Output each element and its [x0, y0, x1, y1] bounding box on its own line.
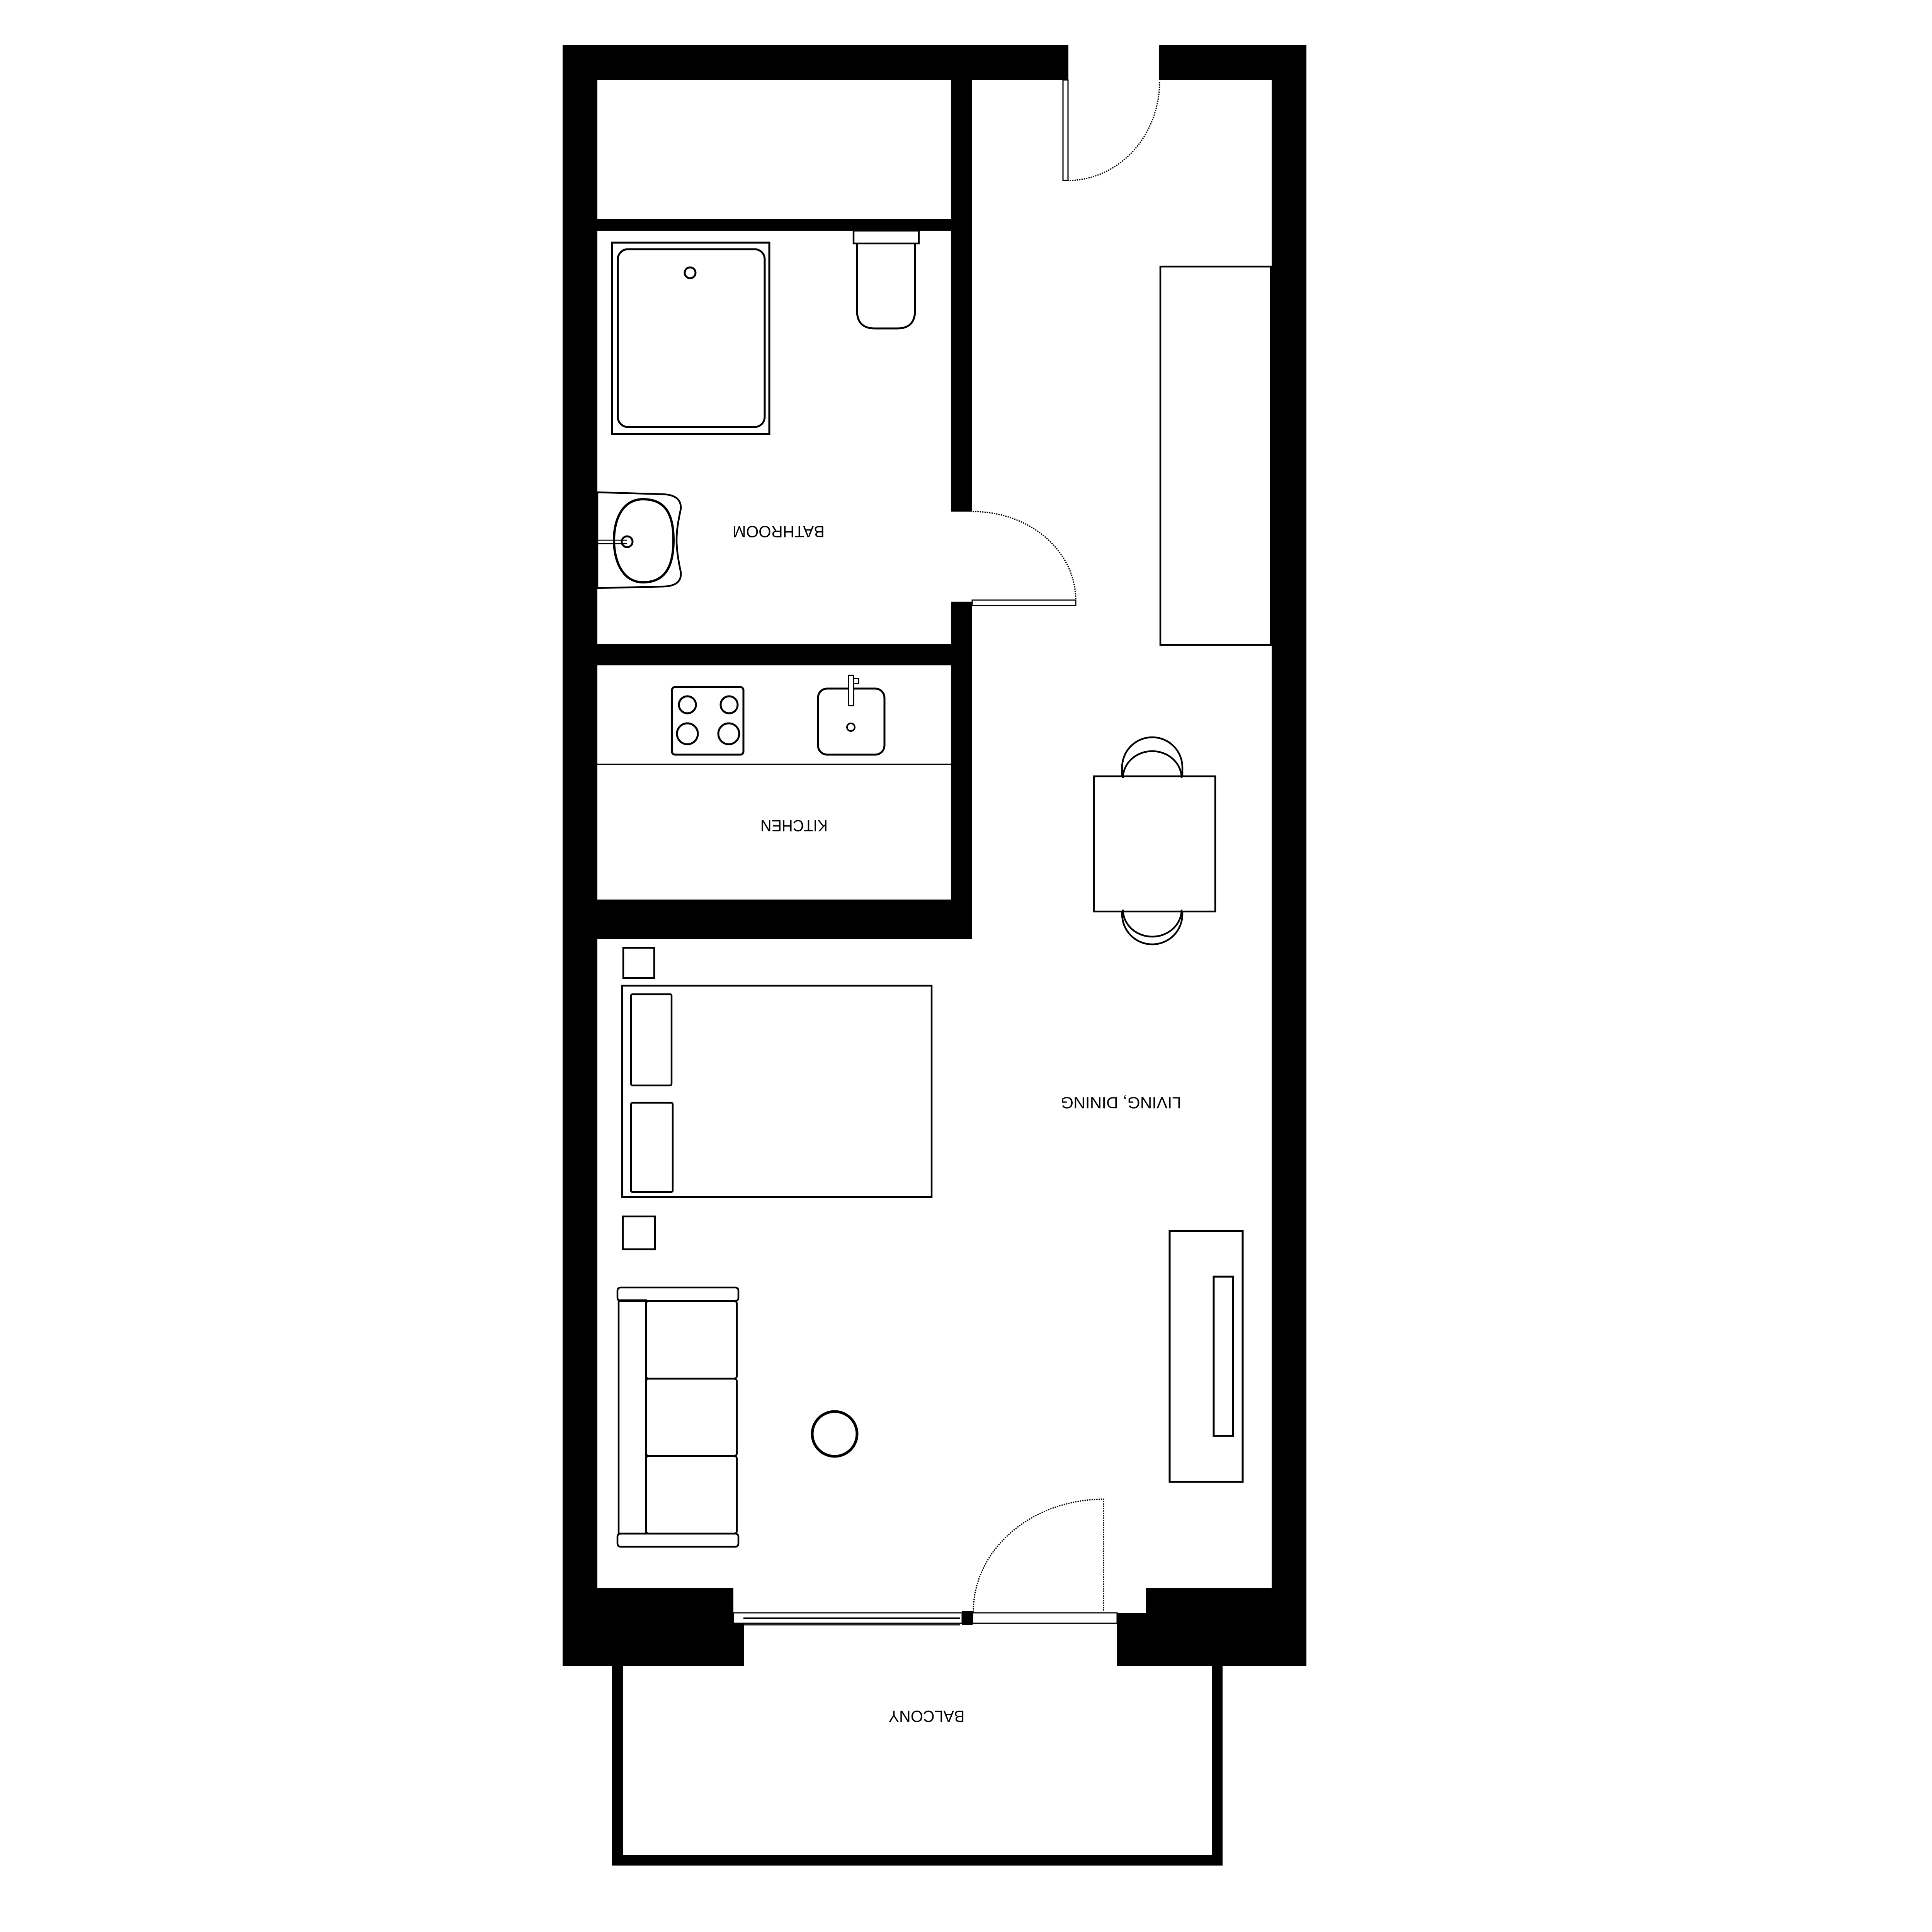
svg-text:BALCONY: BALCONY: [889, 1708, 965, 1726]
svg-text:KITCHEN: KITCHEN: [760, 817, 828, 835]
svg-text:BATHROOM: BATHROOM: [733, 523, 825, 541]
svg-text:LIVING, DINING: LIVING, DINING: [1061, 1094, 1181, 1112]
